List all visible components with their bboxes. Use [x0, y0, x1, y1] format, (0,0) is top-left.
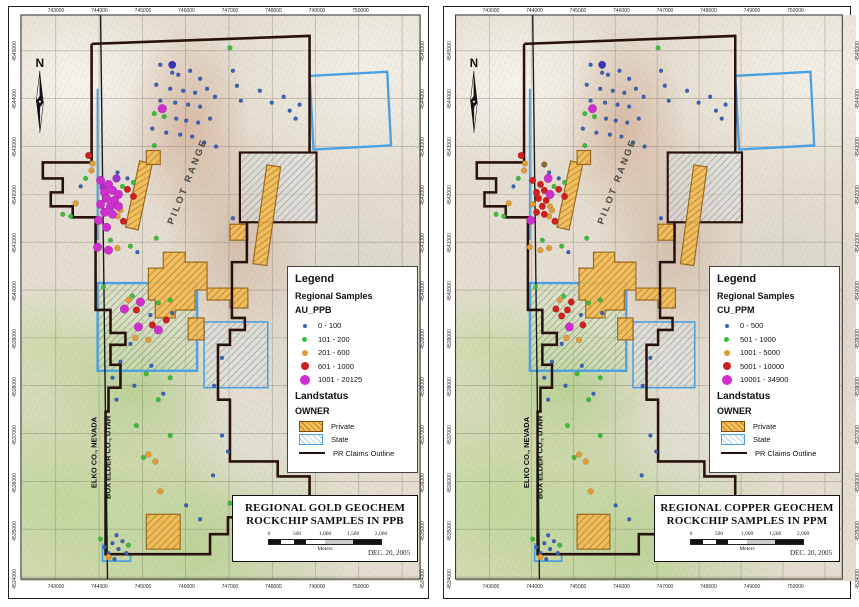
- class-label: 601 - 1000: [318, 362, 354, 371]
- map-canvas-gold: PILOT RANGEELKO CO., NEVADABOX ELDER CO.…: [9, 7, 428, 598]
- legend-class-row: 601 - 1000: [295, 360, 410, 374]
- scale-bar-unit: Meters: [267, 546, 383, 552]
- class-dot-icon: [724, 337, 729, 342]
- pilot-range-label: PILOT RANGE: [166, 137, 211, 226]
- state-swatch-icon: [299, 434, 323, 445]
- legend-class-row: 501 - 1000: [717, 333, 832, 347]
- class-label: 5001 - 10000: [740, 362, 784, 371]
- county-label-utah: BOX ELDER CO., UTAH: [535, 416, 544, 499]
- legend-class-row: 5001 - 10000: [717, 360, 832, 374]
- scale-bar: 0 500 1,000 1,500 2,000 Meters: [267, 531, 383, 551]
- scale-bar-strip: [268, 539, 382, 545]
- class-dot-icon: [301, 362, 309, 370]
- map-date: DEC. 20, 2005: [790, 549, 832, 557]
- legend-owner-row: Private: [295, 420, 410, 434]
- map-date: DEC. 20, 2005: [368, 549, 410, 557]
- scale-tick: 0: [268, 531, 271, 537]
- page: PILOT RANGEELKO CO., NEVADABOX ELDER CO.…: [0, 0, 859, 607]
- map-panel-copper: PILOT RANGEELKO CO., NEVADABOX ELDER CO.…: [443, 6, 851, 599]
- north-arrow-icon: N: [36, 56, 45, 133]
- county-label-nevada: ELKO CO., NEVADA: [522, 416, 531, 488]
- legend-section-label: Regional Samples: [295, 291, 410, 301]
- class-dot-icon: [302, 337, 307, 342]
- map-title-line: ROCKCHIP SAMPLES IN PPM: [655, 515, 839, 528]
- claims-line-icon: [721, 452, 747, 454]
- legend-class-row: 1001 - 20125: [295, 373, 410, 387]
- svg-text:N: N: [36, 56, 45, 70]
- svg-text:N: N: [470, 57, 478, 70]
- class-dot-icon: [722, 375, 732, 385]
- legend-class-row: 1001 - 5000: [717, 346, 832, 360]
- state-swatch-icon: [721, 434, 745, 445]
- legend-owner-label: OWNER: [295, 406, 410, 416]
- scale-bar-strip: [690, 539, 804, 545]
- scale-tick: 1,500: [769, 531, 781, 537]
- scale-tick: 0: [690, 531, 693, 537]
- legend-class-row: 10001 - 34900: [717, 373, 832, 387]
- legend-class-row: 0 - 500: [717, 319, 832, 333]
- claims-line-icon: [299, 452, 325, 454]
- scale-tick: 1,000: [319, 531, 331, 537]
- legend-landstatus-label: Landstatus: [717, 391, 832, 402]
- legend-field-label: CU_PPM: [717, 305, 832, 315]
- class-label: 0 - 500: [740, 321, 763, 330]
- legend-box: Legend Regional Samples CU_PPM 0 - 500 5…: [709, 266, 840, 473]
- scale-bar: 0 500 1,000 1,500 2,000 Meters: [689, 531, 805, 551]
- legend-owner-row: PR Claims Outline: [717, 447, 832, 461]
- pilot-range-label: PILOT RANGE: [596, 137, 638, 226]
- scale-tick: 2,000: [797, 531, 809, 537]
- legend-field-label: AU_PPB: [295, 305, 410, 315]
- map-title-line: REGIONAL COPPER GEOCHEM: [655, 502, 839, 515]
- class-label: 10001 - 34900: [740, 375, 788, 384]
- county-label-nevada: ELKO CO., NEVADA: [90, 416, 99, 488]
- scale-bar-unit: Meters: [689, 546, 805, 552]
- map-title-line: REGIONAL GOLD GEOCHEM: [233, 502, 417, 515]
- scale-tick: 1,500: [347, 531, 359, 537]
- class-dot-icon: [725, 324, 729, 328]
- legend-title: Legend: [717, 273, 832, 285]
- legend-title: Legend: [295, 273, 410, 285]
- legend-landstatus-label: Landstatus: [295, 391, 410, 402]
- scale-tick: 500: [293, 531, 301, 537]
- class-dot-icon: [302, 350, 308, 356]
- legend-owner-row: PR Claims Outline: [295, 447, 410, 461]
- legend-owner-label: OWNER: [717, 406, 832, 416]
- map-title-box: REGIONAL COPPER GEOCHEM ROCKCHIP SAMPLES…: [654, 495, 840, 562]
- class-label: 0 - 100: [318, 321, 341, 330]
- class-dot-icon: [303, 324, 307, 328]
- owner-label: PR Claims Outline: [755, 449, 816, 458]
- legend-owner-row: Private: [717, 420, 832, 434]
- private-swatch-icon: [299, 421, 323, 432]
- legend-class-row: 101 - 200: [295, 333, 410, 347]
- class-label: 1001 - 5000: [740, 348, 780, 357]
- scale-tick: 500: [715, 531, 723, 537]
- scale-tick: 2,000: [375, 531, 387, 537]
- legend-box: Legend Regional Samples AU_PPB 0 - 100 1…: [287, 266, 418, 473]
- class-dot-icon: [724, 350, 730, 356]
- legend-class-row: 0 - 100: [295, 319, 410, 333]
- class-dot-icon: [723, 362, 731, 370]
- class-label: 201 - 600: [318, 348, 350, 357]
- legend-owner-row: State: [295, 433, 410, 447]
- class-label: 101 - 200: [318, 335, 350, 344]
- map-panel-gold: PILOT RANGEELKO CO., NEVADABOX ELDER CO.…: [8, 6, 429, 599]
- legend-class-row: 201 - 600: [295, 346, 410, 360]
- class-label: 1001 - 20125: [318, 375, 362, 384]
- owner-label: State: [753, 435, 771, 444]
- legend-owner-row: State: [717, 433, 832, 447]
- owner-label: Private: [753, 422, 776, 431]
- owner-label: State: [331, 435, 349, 444]
- map-title-line: ROCKCHIP SAMPLES IN PPB: [233, 515, 417, 528]
- owner-label: PR Claims Outline: [333, 449, 394, 458]
- scale-bar-ticks: 0 500 1,000 1,500 2,000: [689, 531, 805, 538]
- legend-section-label: Regional Samples: [717, 291, 832, 301]
- map-canvas-copper: PILOT RANGEELKO CO., NEVADABOX ELDER CO.…: [444, 7, 850, 598]
- owner-label: Private: [331, 422, 354, 431]
- scale-bar-ticks: 0 500 1,000 1,500 2,000: [267, 531, 383, 538]
- private-swatch-icon: [721, 421, 745, 432]
- scale-tick: 1,000: [741, 531, 753, 537]
- class-label: 501 - 1000: [740, 335, 776, 344]
- class-dot-icon: [300, 375, 310, 385]
- map-title-box: REGIONAL GOLD GEOCHEM ROCKCHIP SAMPLES I…: [232, 495, 418, 562]
- north-arrow-icon: N: [470, 57, 478, 133]
- county-label-utah: BOX ELDER CO., UTAH: [104, 416, 113, 499]
